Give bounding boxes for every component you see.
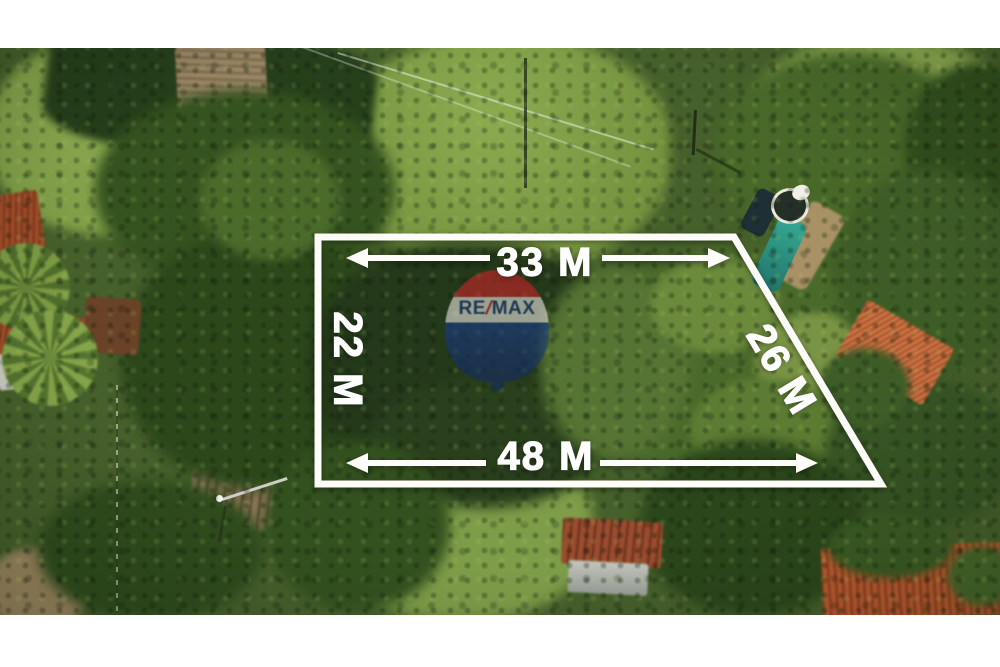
balloon-basket: [491, 380, 503, 391]
measurement-label-top: 33 M: [497, 241, 594, 286]
grass-field-top-center: [340, 48, 670, 268]
remax-re: RE: [459, 298, 486, 319]
utility-pole-center: [524, 58, 527, 188]
palm-tree-2: [2, 310, 98, 406]
balloon-body: [445, 270, 549, 382]
remax-wordmark: RE/MAX: [445, 298, 549, 320]
measurement-label-left: 22 M: [325, 312, 370, 409]
street-light-lamp: [216, 495, 223, 502]
measurement-label-bottom: 48 M: [498, 435, 595, 480]
screenshot: RE/MAX 33 M 22 M 26 M 48 M: [0, 0, 1000, 667]
tree-canopy-bottom-left: [38, 480, 263, 615]
tree-canopy-left-highlight: [200, 140, 340, 260]
tree-over-roof-mid-right: [820, 348, 910, 428]
shed-grey-section: [567, 560, 649, 596]
remax-balloon-logo: RE/MAX: [445, 270, 549, 396]
remax-max: MAX: [492, 298, 536, 319]
tree-over-roof-bottom-right-1: [828, 516, 953, 578]
tree-canopy-bottom-center: [265, 440, 450, 610]
aerial-photo: RE/MAX 33 M 22 M 26 M 48 M: [0, 48, 1000, 615]
fence-line: [116, 385, 118, 613]
